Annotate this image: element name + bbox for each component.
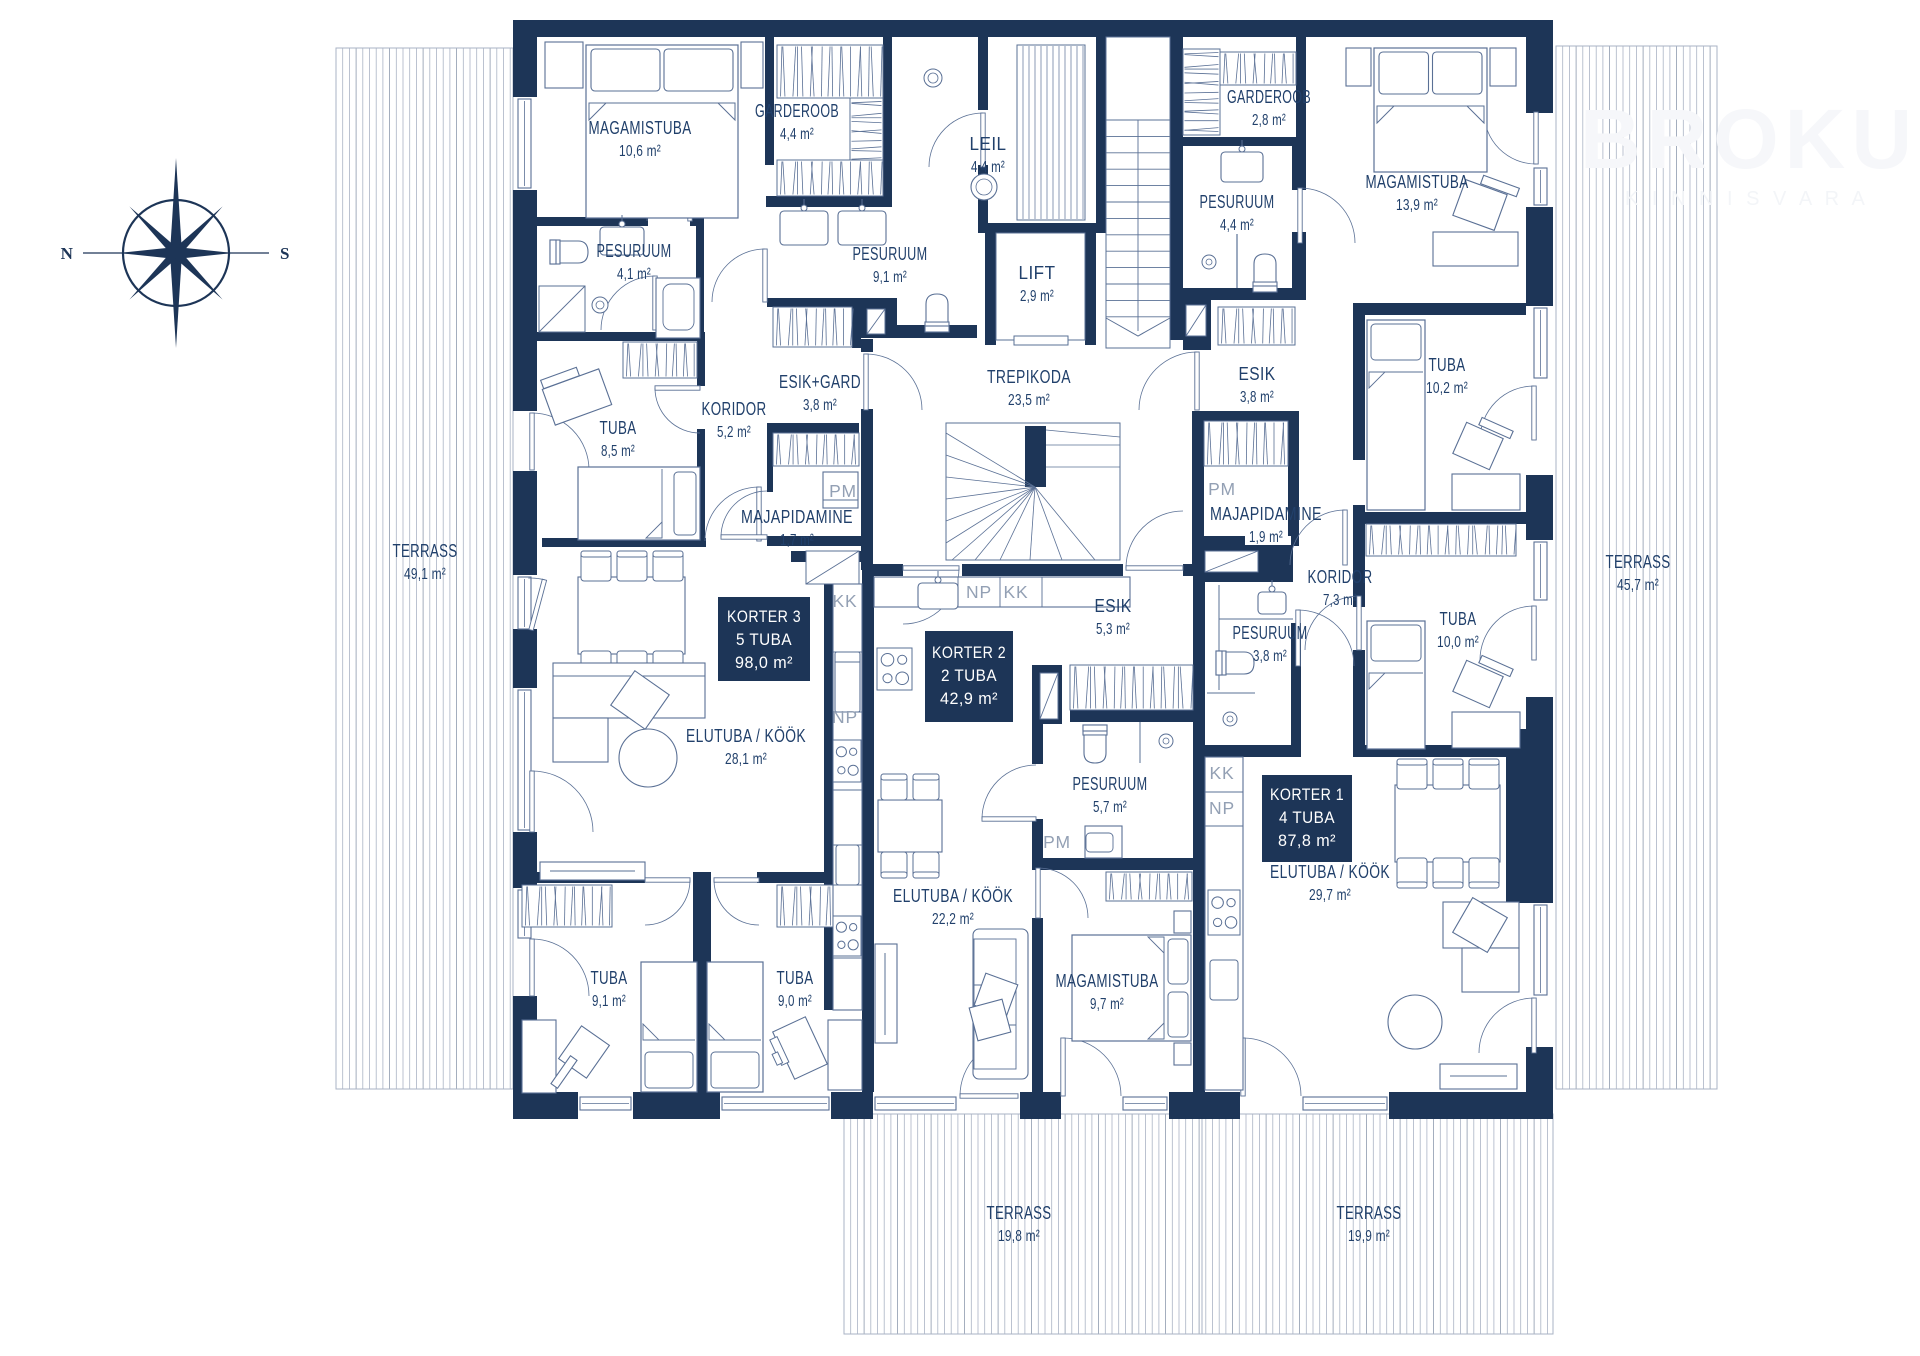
svg-text:PM: PM	[1208, 479, 1236, 499]
svg-text:TERRASS: TERRASS	[1606, 552, 1671, 572]
svg-text:19,9 m²: 19,9 m²	[1348, 1228, 1390, 1245]
svg-text:5 TUBA: 5 TUBA	[736, 630, 792, 649]
svg-text:TERRASS: TERRASS	[1337, 1203, 1402, 1223]
svg-text:29,7 m²: 29,7 m²	[1309, 887, 1351, 904]
svg-text:TUBA: TUBA	[591, 968, 628, 988]
svg-text:98,0 m²: 98,0 m²	[735, 653, 793, 672]
svg-text:4,4 m²: 4,4 m²	[971, 159, 1005, 176]
svg-text:5,7 m²: 5,7 m²	[1093, 799, 1127, 816]
svg-text:NP: NP	[966, 582, 992, 602]
svg-text:TUBA: TUBA	[1440, 609, 1477, 629]
svg-text:23,5 m²: 23,5 m²	[1008, 392, 1050, 409]
svg-text:9,0 m²: 9,0 m²	[778, 993, 812, 1010]
svg-text:NP: NP	[1209, 798, 1235, 818]
svg-text:PESURUUM: PESURUUM	[1073, 774, 1148, 794]
svg-text:N: N	[61, 244, 74, 263]
svg-text:KORIDOR: KORIDOR	[1308, 567, 1373, 587]
svg-text:KORTER 1: KORTER 1	[1270, 785, 1344, 804]
svg-text:5,3 m²: 5,3 m²	[1096, 621, 1130, 638]
svg-text:GARDEROOB: GARDEROOB	[755, 101, 839, 121]
svg-text:KORIDOR: KORIDOR	[702, 399, 767, 419]
svg-text:ESIK: ESIK	[1095, 596, 1132, 616]
svg-text:9,7 m²: 9,7 m²	[1090, 996, 1124, 1013]
svg-text:TREPIKODA: TREPIKODA	[987, 367, 1071, 387]
svg-text:MAJAPIDAMINE: MAJAPIDAMINE	[741, 507, 853, 527]
svg-text:LIFT: LIFT	[1019, 263, 1056, 283]
svg-text:K I N N I S V A R A: K I N N I S V A R A	[1625, 188, 1869, 210]
svg-text:2 TUBA: 2 TUBA	[941, 666, 997, 685]
svg-text:NP: NP	[832, 707, 858, 727]
svg-text:GARDEROOB: GARDEROOB	[1227, 87, 1311, 107]
svg-text:2,8 m²: 2,8 m²	[1252, 112, 1286, 129]
svg-text:1,7 m²: 1,7 m²	[780, 532, 814, 549]
svg-text:KK: KK	[1004, 582, 1029, 602]
svg-text:KORTER 3: KORTER 3	[727, 607, 801, 626]
svg-text:ESIK+GARD: ESIK+GARD	[779, 372, 861, 392]
svg-text:3,8 m²: 3,8 m²	[1253, 648, 1287, 665]
svg-text:PESURUUM: PESURUUM	[1233, 623, 1308, 643]
svg-text:MAGAMISTUBA: MAGAMISTUBA	[589, 118, 692, 138]
svg-text:ELUTUBA / KÖÖK: ELUTUBA / KÖÖK	[686, 726, 806, 746]
svg-text:PESURUUM: PESURUUM	[1200, 192, 1275, 212]
svg-text:4,1 m²: 4,1 m²	[617, 266, 651, 283]
svg-text:ELUTUBA / KÖÖK: ELUTUBA / KÖÖK	[893, 886, 1013, 906]
svg-text:TUBA: TUBA	[600, 418, 637, 438]
svg-text:KK: KK	[833, 591, 858, 611]
svg-text:MAJAPIDAMINE: MAJAPIDAMINE	[1210, 504, 1322, 524]
svg-text:TUBA: TUBA	[777, 968, 814, 988]
svg-text:10,2 m²: 10,2 m²	[1426, 380, 1468, 397]
svg-text:10,0 m²: 10,0 m²	[1437, 634, 1479, 651]
svg-text:BROKUS: BROKUS	[1580, 92, 1920, 186]
svg-text:9,1 m²: 9,1 m²	[592, 993, 626, 1010]
svg-text:4,4 m²: 4,4 m²	[1220, 217, 1254, 234]
svg-text:KORTER 2: KORTER 2	[932, 643, 1006, 662]
svg-text:9,1 m²: 9,1 m²	[873, 269, 907, 286]
svg-text:MAGAMISTUBA: MAGAMISTUBA	[1056, 971, 1159, 991]
svg-text:TERRASS: TERRASS	[393, 541, 458, 561]
svg-text:4,4 m²: 4,4 m²	[780, 126, 814, 143]
svg-text:PM: PM	[1043, 832, 1071, 852]
svg-text:2,9 m²: 2,9 m²	[1020, 288, 1054, 305]
svg-text:4 TUBA: 4 TUBA	[1279, 808, 1335, 827]
svg-text:1,9 m²: 1,9 m²	[1249, 529, 1283, 546]
svg-text:PM: PM	[829, 481, 857, 501]
svg-text:5,2 m²: 5,2 m²	[717, 424, 751, 441]
svg-text:28,1 m²: 28,1 m²	[725, 751, 767, 768]
svg-text:42,9 m²: 42,9 m²	[940, 689, 998, 708]
svg-text:TUBA: TUBA	[1429, 355, 1466, 375]
svg-text:45,7 m²: 45,7 m²	[1617, 577, 1659, 594]
svg-text:49,1 m²: 49,1 m²	[404, 566, 446, 583]
svg-text:13,9 m²: 13,9 m²	[1396, 197, 1438, 214]
svg-text:PESURUUM: PESURUUM	[597, 241, 672, 261]
svg-text:19,8 m²: 19,8 m²	[998, 1228, 1040, 1245]
svg-text:10,6 m²: 10,6 m²	[619, 143, 661, 160]
svg-text:S: S	[280, 244, 290, 263]
svg-text:ESIK: ESIK	[1239, 364, 1276, 384]
svg-text:MAGAMISTUBA: MAGAMISTUBA	[1366, 172, 1469, 192]
svg-text:7,3 m²: 7,3 m²	[1323, 592, 1357, 609]
svg-text:KK: KK	[1210, 763, 1235, 783]
svg-text:3,8 m²: 3,8 m²	[1240, 389, 1274, 406]
svg-text:3,8 m²: 3,8 m²	[803, 397, 837, 414]
svg-text:PESURUUM: PESURUUM	[853, 244, 928, 264]
svg-text:ELUTUBA / KÖÖK: ELUTUBA / KÖÖK	[1270, 862, 1390, 882]
svg-text:TERRASS: TERRASS	[987, 1203, 1052, 1223]
svg-text:22,2 m²: 22,2 m²	[932, 911, 974, 928]
svg-text:87,8 m²: 87,8 m²	[1278, 831, 1336, 850]
svg-text:LEIL: LEIL	[970, 134, 1007, 154]
svg-text:8,5 m²: 8,5 m²	[601, 443, 635, 460]
